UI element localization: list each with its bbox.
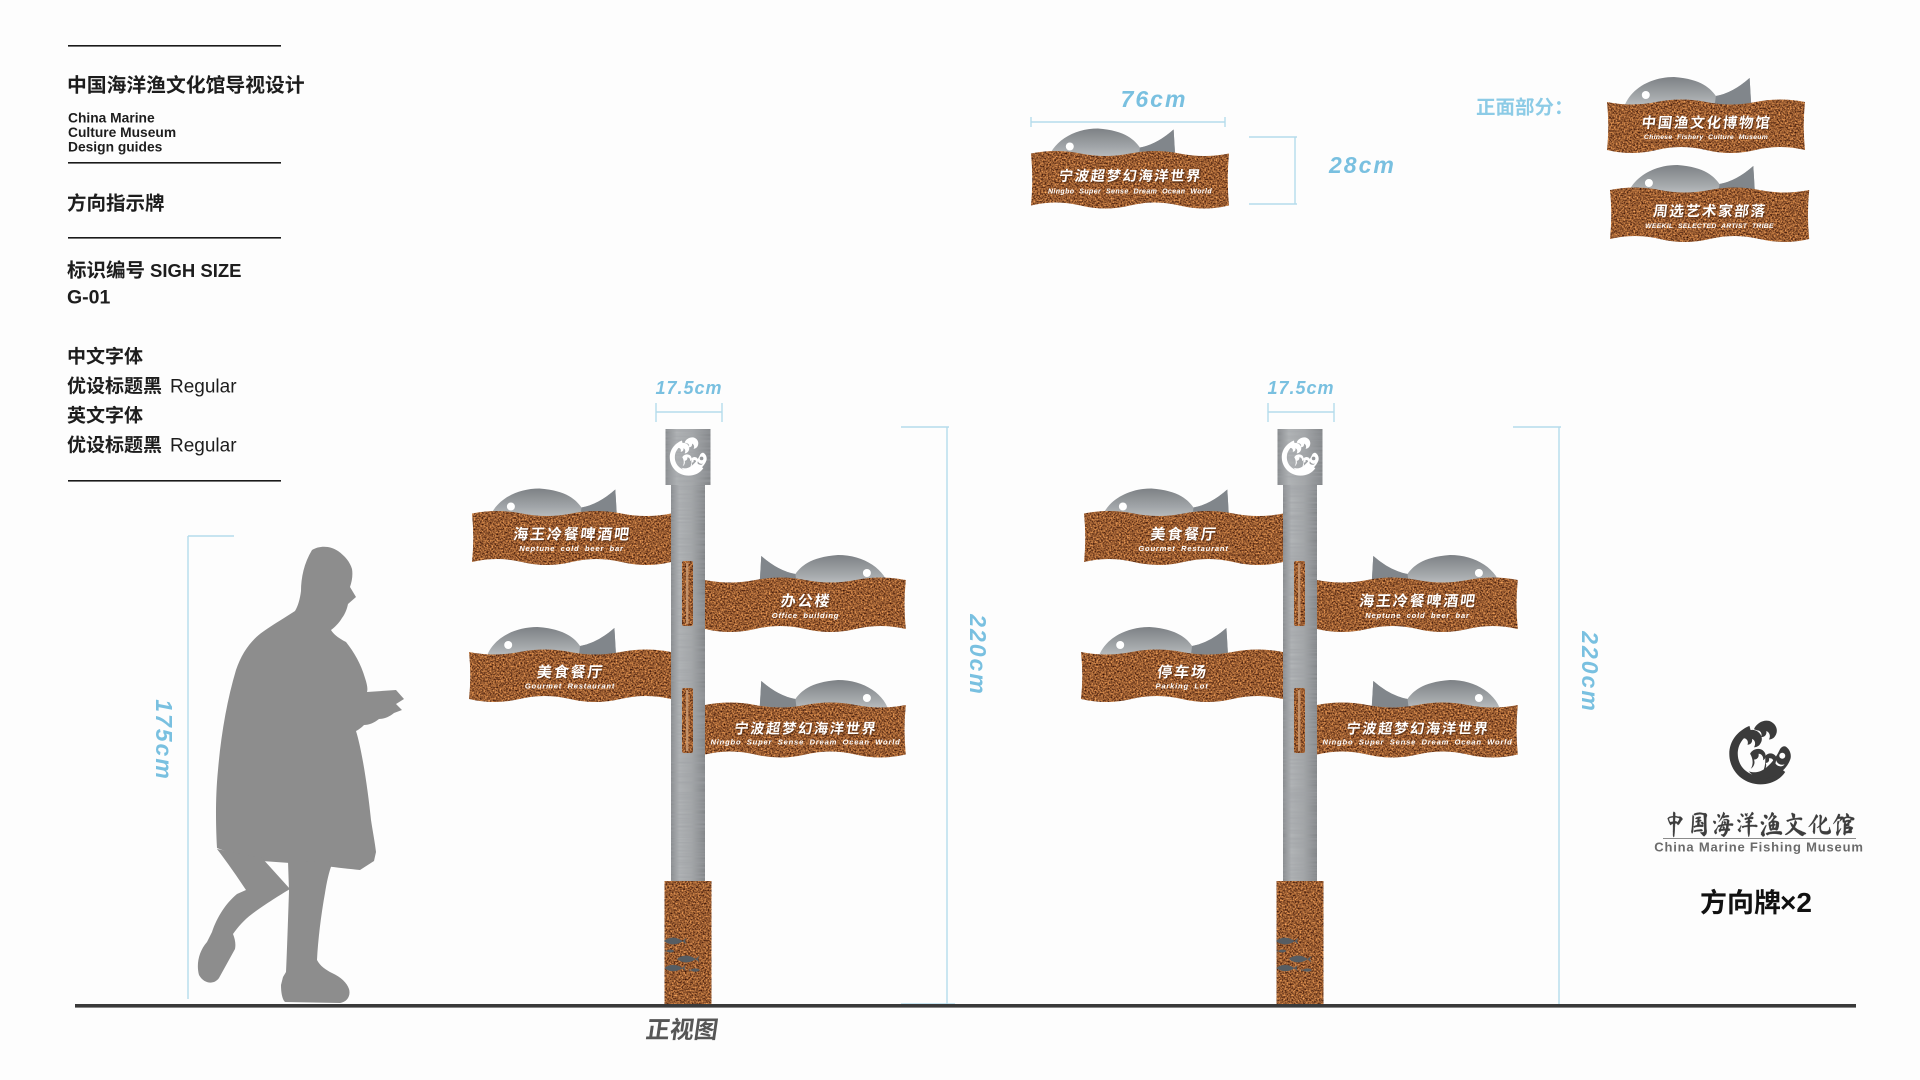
svg-text:WEEKIL SELECTED ARTIST TRIBE: WEEKIL SELECTED ARTIST TRIBE bbox=[1645, 223, 1774, 230]
svg-text:China Marine Fishing Museum: China Marine Fishing Museum bbox=[1654, 840, 1863, 855]
svg-text:G-01: G-01 bbox=[67, 287, 111, 309]
svg-text:175cm: 175cm bbox=[151, 699, 177, 781]
svg-text:SIGH SIZE: SIGH SIZE bbox=[150, 260, 242, 281]
svg-text:Neptune cold beer bar: Neptune cold beer bar bbox=[1365, 611, 1470, 620]
svg-text:28cm: 28cm bbox=[1328, 152, 1396, 178]
svg-text:76cm: 76cm bbox=[1121, 86, 1188, 112]
svg-text:Ningbo Super Sense Dream Ocean: Ningbo Super Sense Dream Ocean World bbox=[710, 738, 900, 747]
svg-text:Ningbo Super Sense Dream Ocean: Ningbo Super Sense Dream Ocean World bbox=[1048, 188, 1212, 195]
svg-text:220cm: 220cm bbox=[965, 613, 991, 696]
svg-text:Gourmet Restaurant: Gourmet Restaurant bbox=[525, 681, 615, 690]
svg-text:Design guides: Design guides bbox=[68, 140, 163, 155]
svg-text:Regular: Regular bbox=[170, 436, 237, 457]
svg-text:17.5cm: 17.5cm bbox=[655, 378, 722, 398]
svg-text:Parking Lot: Parking Lot bbox=[1155, 681, 1208, 690]
svg-text:Ningbo Super Sense Dream Ocean: Ningbo Super Sense Dream Ocean World bbox=[1322, 738, 1512, 747]
svg-text:17.5cm: 17.5cm bbox=[1267, 378, 1334, 398]
svg-text:Office building: Office building bbox=[772, 611, 840, 620]
svg-text:Chinese Fishery Culture Museum: Chinese Fishery Culture Museum bbox=[1644, 134, 1768, 141]
svg-text:Neptune cold beer bar: Neptune cold beer bar bbox=[519, 544, 624, 553]
svg-text:Culture Museum: Culture Museum bbox=[68, 125, 176, 140]
svg-text:Gourmet Restaurant: Gourmet Restaurant bbox=[1138, 544, 1228, 553]
svg-text:×2: ×2 bbox=[1780, 887, 1812, 918]
svg-text:220cm: 220cm bbox=[1577, 630, 1603, 713]
svg-text:Regular: Regular bbox=[170, 377, 237, 398]
svg-text:China Marine: China Marine bbox=[68, 111, 155, 126]
